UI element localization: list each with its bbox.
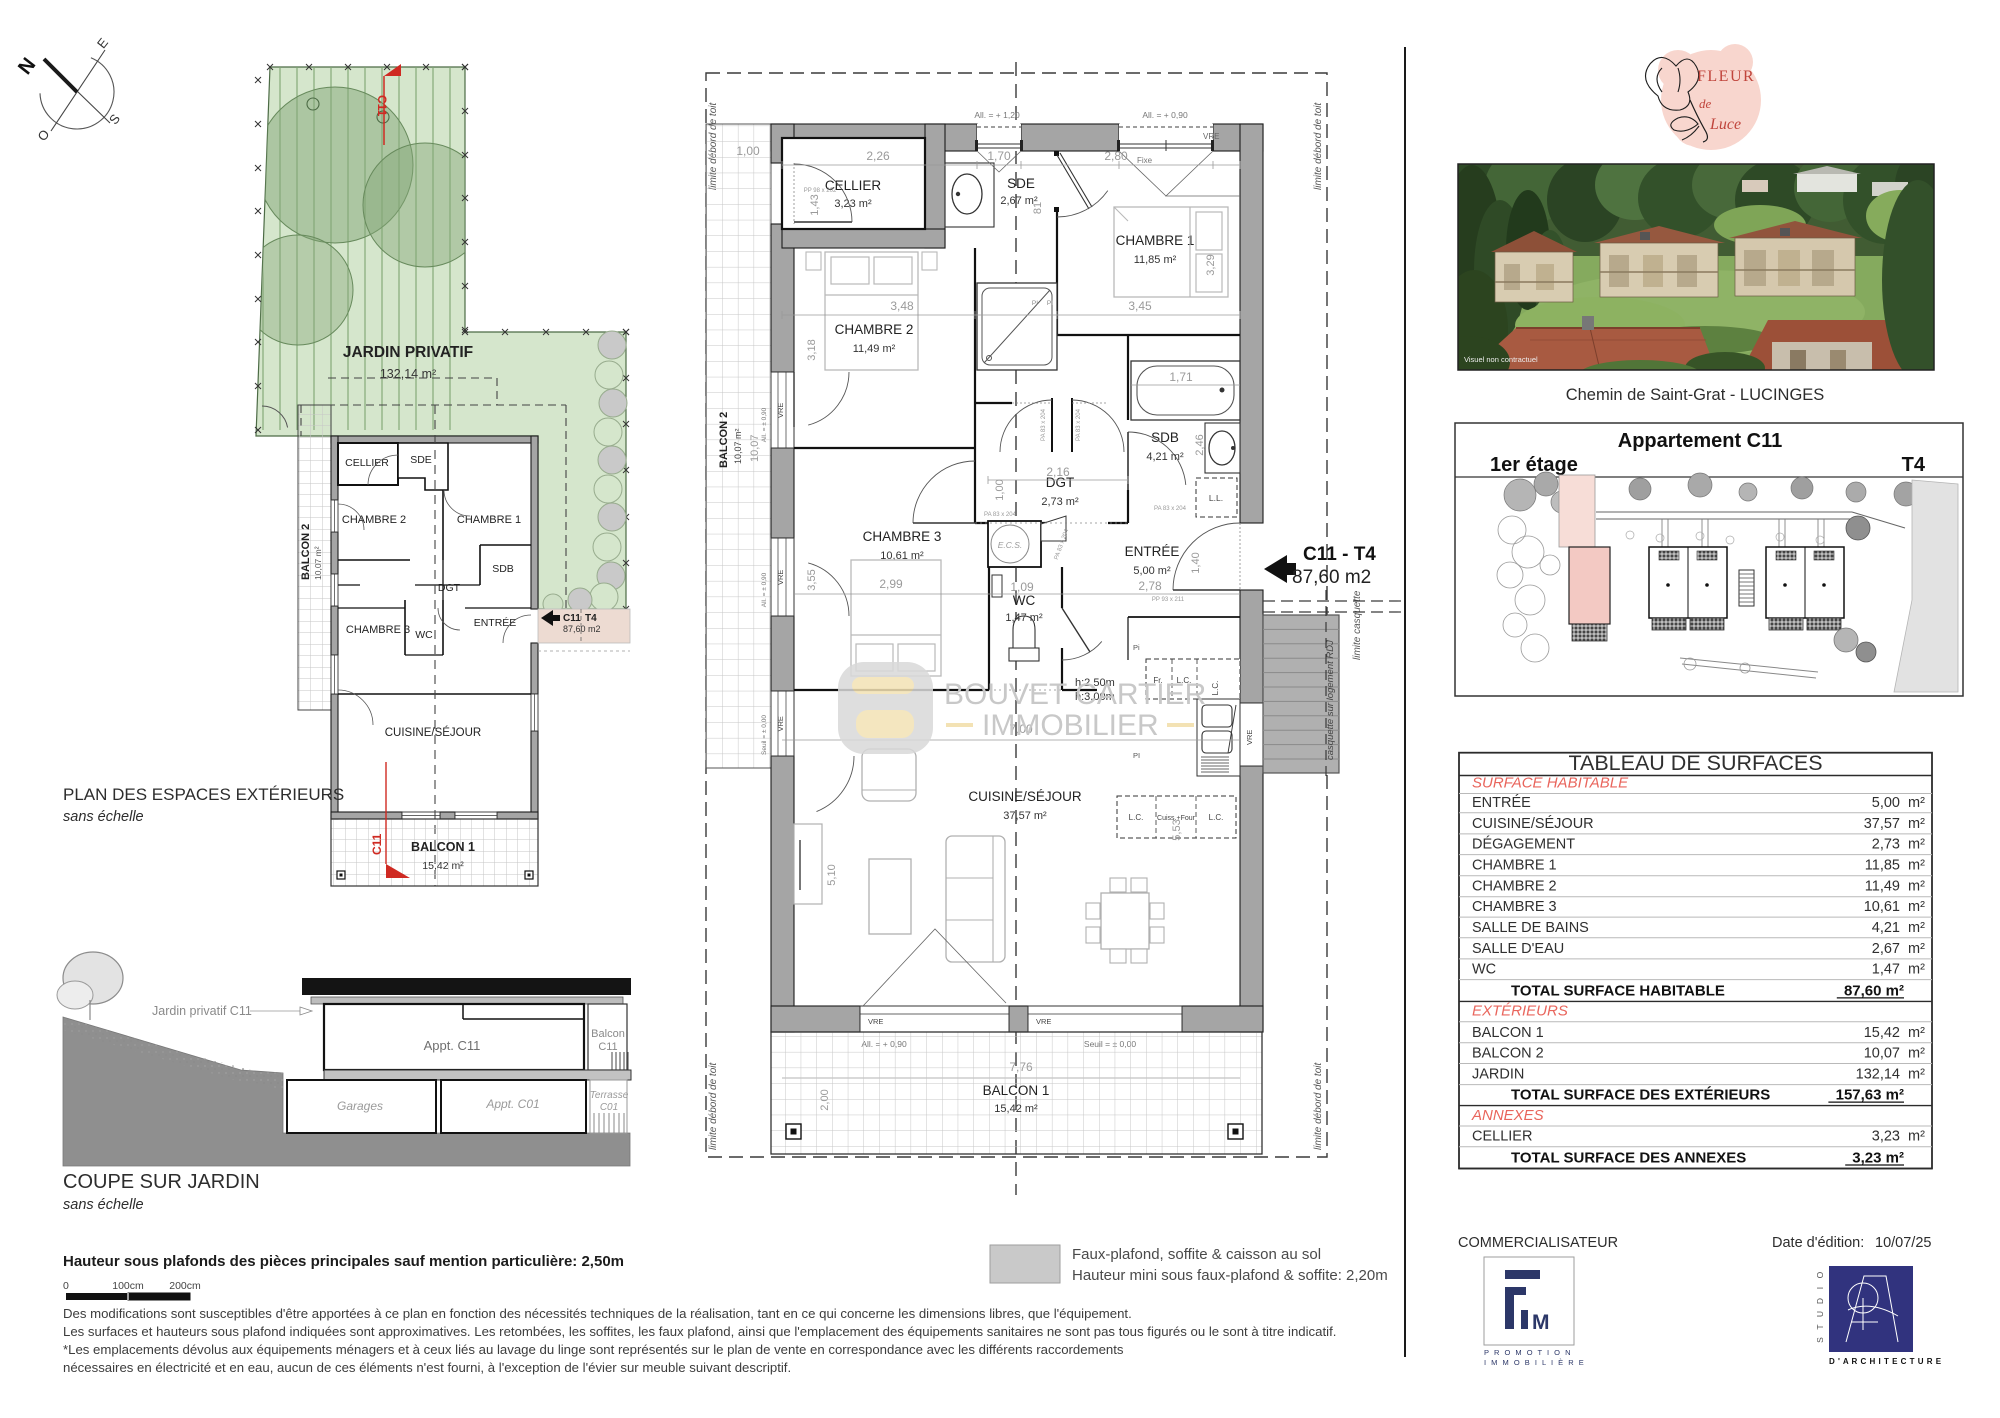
svg-text:L.C.: L.C. [1209, 813, 1224, 822]
svg-text:IMMOBILIER: IMMOBILIER [982, 709, 1159, 742]
svg-text:CHAMBRE 3: CHAMBRE 3 [346, 624, 410, 636]
svg-text:FLEUR: FLEUR [1697, 68, 1755, 85]
svg-text:Hauteur mini sous faux-plafond: Hauteur mini sous faux-plafond & soffite… [1072, 1267, 1388, 1284]
svg-text:All. = + 1,20: All. = + 1,20 [974, 110, 1020, 120]
svg-text:10,07: 10,07 [749, 434, 761, 462]
svg-text:2,26: 2,26 [866, 149, 890, 163]
svg-text:PA 83 x 204: PA 83 x 204 [1041, 408, 1047, 441]
svg-text:Hauteur sous plafonds des pièc: Hauteur sous plafonds des pièces princip… [63, 1253, 624, 1270]
svg-text:1,09: 1,09 [1010, 580, 1034, 594]
svg-text:11,85: 11,85 [1865, 858, 1900, 874]
svg-text:O: O [1815, 1271, 1825, 1278]
svg-text:BALCON 2: BALCON 2 [718, 412, 730, 468]
svg-text:1,00: 1,00 [994, 479, 1006, 500]
svg-text:87,60 m²: 87,60 m² [1844, 982, 1904, 999]
svg-text:L.C.: L.C. [1129, 813, 1144, 822]
svg-text:Les surfaces et hauteurs sous: Les surfaces et hauteurs sous plafond in… [63, 1324, 1336, 1339]
svg-text:U: U [1815, 1311, 1825, 1317]
svg-text:5,00 m²: 5,00 m² [1133, 565, 1171, 577]
svg-text:15,42 m²: 15,42 m² [422, 860, 464, 872]
svg-text:sans échelle: sans échelle [63, 809, 144, 825]
svg-text:Fixe: Fixe [1137, 156, 1153, 165]
svg-text:1er étage: 1er étage [1490, 454, 1578, 476]
svg-text:PP 93 x 211: PP 93 x 211 [1152, 597, 1185, 603]
svg-text:C11: C11 [563, 613, 581, 624]
svg-text:WC: WC [1472, 962, 1496, 978]
svg-text:3,29: 3,29 [1205, 254, 1217, 275]
svg-text:SALLE DE BAINS: SALLE DE BAINS [1472, 920, 1589, 936]
svg-text:C11: C11 [598, 1041, 617, 1053]
svg-text:DGT: DGT [438, 582, 461, 594]
svg-text:11,85 m²: 11,85 m² [1134, 254, 1177, 266]
svg-text:Date d'édition:: Date d'édition: [1772, 1235, 1864, 1251]
svg-text:BALCON 1: BALCON 1 [983, 1083, 1050, 1098]
svg-text:10,07: 10,07 [1864, 1046, 1900, 1062]
svg-text:D ' A R C H I T E C T U R E: D ' A R C H I T E C T U R E [1829, 1357, 1942, 1366]
svg-text:132,14: 132,14 [1856, 1067, 1900, 1083]
svg-text:3,18: 3,18 [806, 339, 818, 360]
svg-text:sans échelle: sans échelle [63, 1197, 144, 1213]
svg-text:TABLEAU DE SURFACES: TABLEAU DE SURFACES [1568, 751, 1822, 775]
svg-text:100cm: 100cm [112, 1280, 144, 1292]
svg-text:2,78: 2,78 [1138, 579, 1162, 593]
svg-text:3,55: 3,55 [806, 569, 818, 590]
svg-text:VRE: VRE [1245, 730, 1254, 745]
svg-text:m²: m² [1908, 1129, 1925, 1145]
svg-text:PI: PI [1047, 300, 1053, 307]
svg-text:ENTRÉE: ENTRÉE [1472, 794, 1531, 811]
svg-text:PP 98 x 202: PP 98 x 202 [804, 188, 837, 194]
svg-text:15,42: 15,42 [1864, 1025, 1900, 1041]
svg-text:limite débord de toit: limite débord de toit [708, 1062, 719, 1150]
svg-text:casquette sur logement RDJ: casquette sur logement RDJ [1325, 640, 1336, 760]
svg-text:m²: m² [1908, 962, 1925, 978]
svg-text:CHAMBRE 2: CHAMBRE 2 [1472, 879, 1557, 895]
svg-text:M: M [1532, 1311, 1550, 1334]
svg-text:11,49: 11,49 [1865, 879, 1900, 895]
svg-text:Pi: Pi [1133, 643, 1140, 652]
svg-text:5,00: 5,00 [1872, 795, 1900, 811]
svg-text:E.C.S.: E.C.S. [998, 540, 1023, 550]
svg-text:m²: m² [1908, 899, 1925, 915]
svg-text:nécessaires en électricité et: nécessaires en électricité et en eau, au… [63, 1360, 791, 1375]
svg-text:PA 83 x 204: PA 83 x 204 [1076, 408, 1082, 441]
svg-text:Appt. C11: Appt. C11 [424, 1038, 481, 1053]
svg-text:SURFACE HABITABLE: SURFACE HABITABLE [1472, 775, 1629, 792]
svg-text:m²: m² [1908, 858, 1925, 874]
svg-text:T4: T4 [1902, 454, 1926, 476]
svg-text:Balcon: Balcon [591, 1028, 625, 1040]
svg-text:1,00: 1,00 [736, 144, 760, 158]
svg-text:TOTAL SURFACE DES ANNEXES: TOTAL SURFACE DES ANNEXES [1511, 1150, 1746, 1167]
svg-text:SDB: SDB [1151, 430, 1179, 445]
svg-text:10/07/25: 10/07/25 [1875, 1235, 1931, 1251]
svg-text:Garages: Garages [337, 1099, 383, 1113]
svg-text:COUPE SUR JARDIN: COUPE SUR JARDIN [63, 1171, 260, 1193]
svg-text:ANNEXES: ANNEXES [1471, 1107, 1544, 1124]
svg-text:Jardin privatif C11: Jardin privatif C11 [152, 1004, 252, 1018]
svg-text:CHAMBRE 1: CHAMBRE 1 [1116, 233, 1195, 248]
svg-text:4,21: 4,21 [1872, 920, 1900, 936]
svg-text:JARDIN PRIVATIF: JARDIN PRIVATIF [343, 344, 473, 361]
svg-text:15,42 m²: 15,42 m² [994, 1103, 1038, 1115]
svg-text:132,14 m²: 132,14 m² [380, 367, 436, 381]
svg-text:WC: WC [1013, 593, 1036, 608]
svg-text:Seuil = ± 0,00: Seuil = ± 0,00 [761, 715, 768, 755]
svg-text:C11: C11 [370, 833, 384, 855]
svg-text:VRE: VRE [776, 716, 785, 731]
svg-text:CHAMBRE 3: CHAMBRE 3 [863, 529, 942, 544]
svg-text:CHAMBRE 2: CHAMBRE 2 [342, 514, 406, 526]
svg-text:m²: m² [1908, 1046, 1925, 1062]
svg-text:WC: WC [415, 629, 433, 641]
svg-text:SDE: SDE [410, 454, 432, 466]
svg-text:CUISINE/SÉJOUR: CUISINE/SÉJOUR [968, 789, 1082, 804]
svg-text:m²: m² [1908, 920, 1925, 936]
svg-text:BALCON 1: BALCON 1 [1472, 1025, 1544, 1041]
svg-text:1,43: 1,43 [809, 194, 821, 215]
svg-text:I M M O B I L I È R E: I M M O B I L I È R E [1484, 1358, 1585, 1367]
svg-text:SDE: SDE [1007, 176, 1035, 191]
svg-text:CHAMBRE 2: CHAMBRE 2 [835, 322, 914, 337]
svg-text:2,99: 2,99 [879, 577, 903, 591]
svg-text:C11 - T4: C11 - T4 [1303, 544, 1376, 565]
svg-text:DÉGAGEMENT: DÉGAGEMENT [1472, 836, 1575, 853]
svg-text:All. = ± 0,90: All. = ± 0,90 [761, 572, 768, 607]
svg-text:2,73: 2,73 [1872, 837, 1900, 853]
svg-text:1,40: 1,40 [1190, 552, 1202, 573]
svg-text:L.C.: L.C. [1211, 681, 1220, 696]
svg-text:CHAMBRE 3: CHAMBRE 3 [1472, 899, 1557, 915]
svg-text:2,46: 2,46 [1194, 434, 1206, 455]
svg-text:1,47: 1,47 [1872, 962, 1900, 978]
svg-text:m²: m² [1908, 816, 1925, 832]
svg-text:m²: m² [1908, 1067, 1925, 1083]
svg-text:I: I [1815, 1287, 1825, 1289]
svg-text:BOUVET CARTIER: BOUVET CARTIER [944, 678, 1206, 711]
svg-text:T4: T4 [585, 613, 597, 624]
svg-text:PLAN DES ESPACES EXTÉRIEURS: PLAN DES ESPACES EXTÉRIEURS [63, 785, 344, 804]
svg-text:CUISINE/SÉJOUR: CUISINE/SÉJOUR [1472, 815, 1594, 832]
svg-text:Luce: Luce [1709, 116, 1741, 133]
svg-text:TOTAL SURFACE DES EXTÉRIEURS: TOTAL SURFACE DES EXTÉRIEURS [1511, 1087, 1770, 1104]
svg-text:C01: C01 [600, 1102, 618, 1113]
svg-text:COMMERCIALISATEUR: COMMERCIALISATEUR [1458, 1235, 1618, 1251]
svg-text:EXTÉRIEURS: EXTÉRIEURS [1472, 1003, 1568, 1020]
svg-text:37,57: 37,57 [1864, 816, 1900, 832]
svg-text:Visuel non contractuel: Visuel non contractuel [1464, 355, 1538, 364]
svg-text:Faux-plafond, soffite & caisso: Faux-plafond, soffite & caisson au sol [1072, 1246, 1321, 1263]
svg-text:VRE: VRE [1036, 1017, 1051, 1026]
svg-text:m²: m² [1908, 795, 1925, 811]
svg-text:PA 83 x 204: PA 83 x 204 [984, 512, 1017, 518]
svg-text:2,67: 2,67 [1872, 941, 1900, 957]
svg-text:Des modifications sont suscept: Des modifications sont susceptibles d'êt… [63, 1306, 1132, 1321]
svg-text:3,45: 3,45 [1128, 299, 1152, 313]
svg-text:Appt. C01: Appt. C01 [485, 1097, 539, 1111]
svg-text:All. = + 0,90: All. = + 0,90 [1142, 110, 1188, 120]
svg-text:SALLE D'EAU: SALLE D'EAU [1472, 941, 1564, 957]
svg-text:D: D [1815, 1298, 1825, 1304]
svg-text:2,16: 2,16 [1046, 465, 1070, 479]
svg-text:3,48: 3,48 [890, 299, 914, 313]
svg-text:m²: m² [1908, 879, 1925, 895]
svg-text:1,71: 1,71 [1169, 370, 1193, 384]
svg-text:JARDIN: JARDIN [1472, 1067, 1524, 1083]
svg-text:limite débord de toit: limite débord de toit [1313, 102, 1324, 190]
svg-text:BALCON 2: BALCON 2 [1472, 1046, 1544, 1062]
svg-text:TOTAL SURFACE HABITABLE: TOTAL SURFACE HABITABLE [1511, 982, 1725, 999]
svg-text:m²: m² [1908, 941, 1925, 957]
svg-text:0: 0 [63, 1280, 69, 1292]
svg-text:3,23 m²: 3,23 m² [834, 198, 872, 210]
svg-text:de: de [1699, 96, 1712, 111]
svg-text:200cm: 200cm [169, 1280, 201, 1292]
svg-text:87,60 m2: 87,60 m2 [1292, 567, 1371, 588]
svg-text:limite débord de toit: limite débord de toit [1313, 1062, 1324, 1150]
svg-text:PA 83 x 204: PA 83 x 204 [1154, 506, 1187, 512]
svg-text:*Les emplacements dévolus aux: *Les emplacements dévolus aux équipement… [63, 1342, 1124, 1357]
svg-text:BALCON 1: BALCON 1 [411, 840, 475, 854]
svg-text:PI: PI [1032, 300, 1038, 307]
svg-text:P R O M O T I O N: P R O M O T I O N [1484, 1348, 1572, 1357]
svg-text:C11: C11 [375, 95, 389, 117]
svg-text:10,07 m²: 10,07 m² [313, 546, 323, 580]
svg-text:CHAMBRE 1: CHAMBRE 1 [1472, 858, 1557, 874]
svg-text:2,73 m²: 2,73 m² [1041, 496, 1079, 508]
svg-text:PI: PI [1133, 751, 1140, 760]
svg-text:m²: m² [1908, 837, 1925, 853]
svg-text:81: 81 [1032, 202, 1044, 214]
svg-text:T: T [1815, 1324, 1825, 1329]
svg-text:3,23 m²: 3,23 m² [1852, 1150, 1904, 1167]
svg-text:VRE: VRE [776, 403, 785, 418]
svg-text:ENTRÉE: ENTRÉE [474, 616, 517, 629]
svg-text:VRE: VRE [1203, 132, 1219, 141]
svg-text:5,10: 5,10 [826, 864, 838, 885]
svg-text:Appartement C11: Appartement C11 [1618, 430, 1783, 452]
svg-text:m²: m² [1908, 1025, 1925, 1041]
svg-text:37,57 m²: 37,57 m² [1003, 810, 1047, 822]
svg-text:11,49 m²: 11,49 m² [853, 343, 896, 355]
svg-text:3,23: 3,23 [1872, 1129, 1900, 1145]
svg-text:1,47 m²: 1,47 m² [1005, 612, 1043, 624]
svg-text:10,07 m²: 10,07 m² [733, 428, 743, 464]
svg-text:CUISINE/SÉJOUR: CUISINE/SÉJOUR [385, 726, 482, 739]
svg-text:All. = ± 0,90: All. = ± 0,90 [761, 407, 768, 442]
svg-text:BALCON 2: BALCON 2 [300, 524, 312, 580]
svg-text:SDB: SDB [492, 563, 514, 575]
svg-text:ENTRÉE: ENTRÉE [1125, 544, 1180, 559]
svg-text:VRE: VRE [868, 1017, 883, 1026]
svg-text:1,70: 1,70 [987, 149, 1011, 163]
svg-text:2,80: 2,80 [1104, 149, 1128, 163]
svg-text:L.L.: L.L. [1209, 493, 1223, 503]
svg-text:Chemin de Saint-Grat - LUCINGE: Chemin de Saint-Grat - LUCINGES [1566, 386, 1825, 404]
svg-text:S: S [1815, 1337, 1825, 1343]
svg-text:5,53: 5,53 [1171, 819, 1183, 840]
svg-text:10,61: 10,61 [1864, 899, 1900, 915]
svg-text:157,63 m²: 157,63 m² [1836, 1087, 1904, 1104]
svg-text:Terrasse: Terrasse [590, 1090, 629, 1101]
svg-text:CELLIER: CELLIER [1472, 1129, 1532, 1145]
svg-text:VRE: VRE [776, 570, 785, 585]
svg-text:87,60 m2: 87,60 m2 [563, 624, 601, 634]
